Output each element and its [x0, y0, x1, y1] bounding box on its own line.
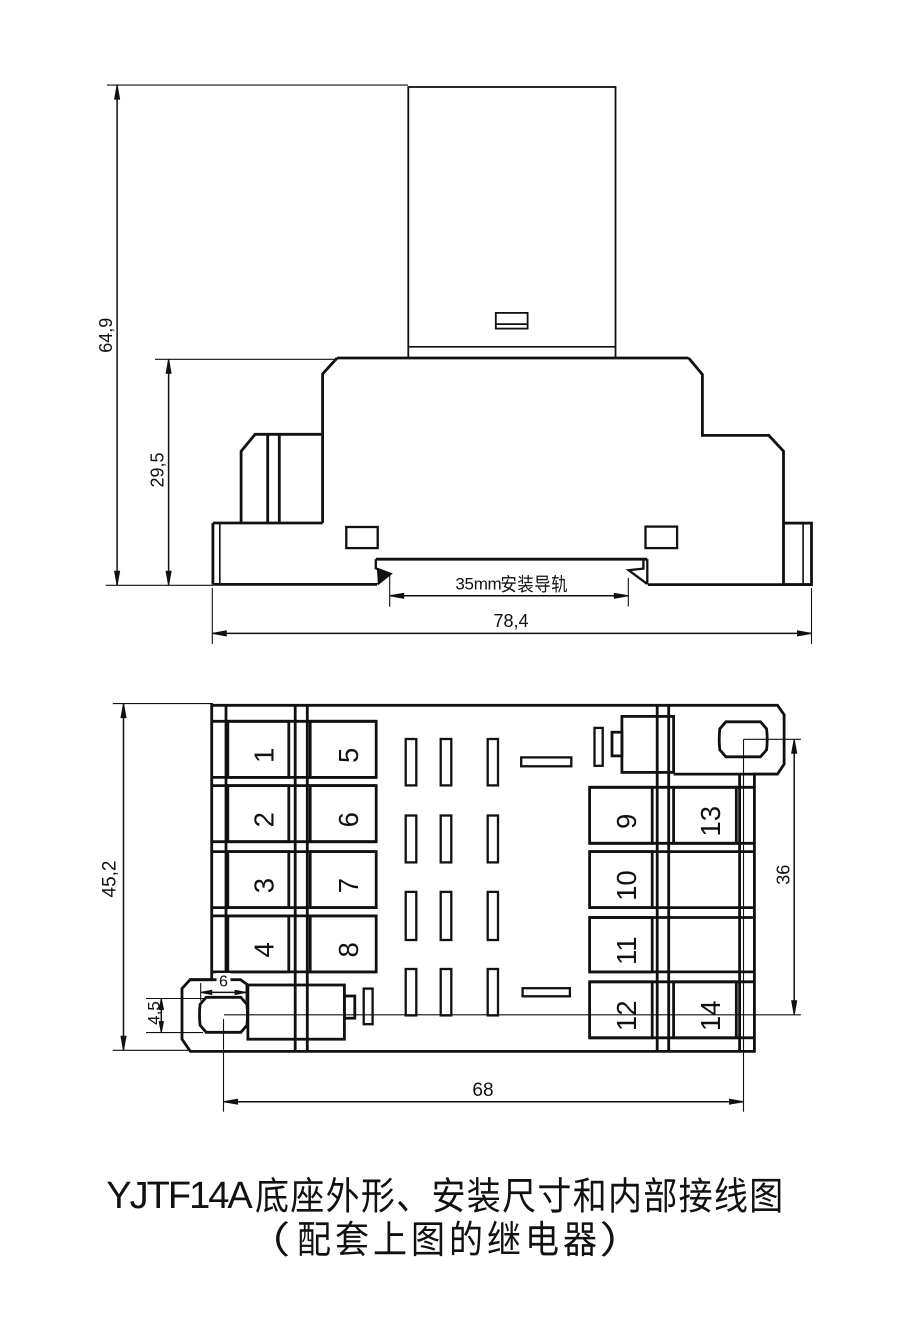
svg-text:8: 8 [333, 942, 364, 957]
svg-text:2: 2 [248, 812, 279, 827]
svg-text:78,4: 78,4 [493, 611, 528, 631]
svg-text:11: 11 [611, 936, 642, 965]
svg-text:12: 12 [611, 1001, 642, 1032]
svg-text:35mm: 35mm [455, 575, 501, 594]
svg-text:7: 7 [333, 878, 364, 893]
svg-text:5: 5 [333, 748, 364, 763]
svg-text:6: 6 [333, 812, 364, 827]
svg-text:4,5: 4,5 [145, 1001, 164, 1025]
svg-text:3: 3 [248, 878, 279, 893]
svg-text:9: 9 [611, 814, 642, 829]
svg-text:45,2: 45,2 [100, 861, 121, 898]
svg-text:10: 10 [611, 870, 642, 901]
svg-text:4: 4 [248, 942, 279, 957]
svg-text:6: 6 [219, 974, 228, 991]
svg-text:YJTF14A: YJTF14A [106, 1175, 253, 1217]
svg-text:1: 1 [248, 748, 279, 763]
svg-text:14: 14 [695, 1001, 726, 1032]
svg-text:29,5: 29,5 [148, 452, 168, 487]
svg-text:13: 13 [695, 806, 726, 837]
svg-text:68: 68 [472, 1080, 493, 1101]
svg-text:36: 36 [774, 865, 794, 885]
svg-text:64,9: 64,9 [96, 318, 116, 353]
